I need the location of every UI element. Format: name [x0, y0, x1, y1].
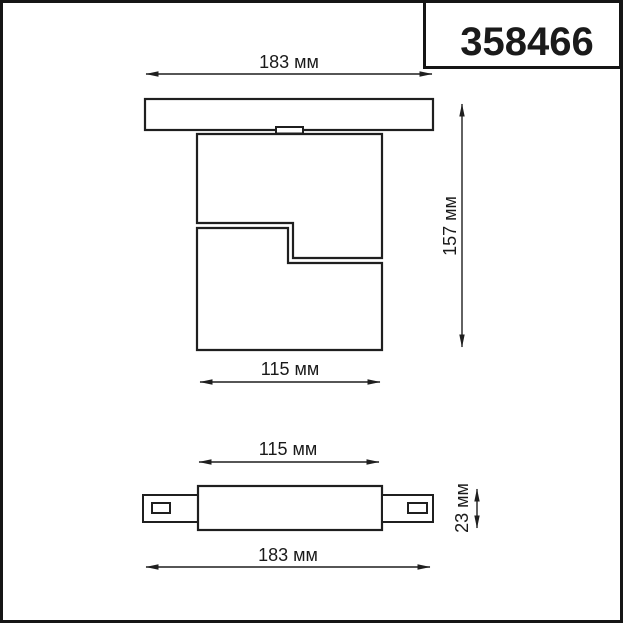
track-bar	[145, 99, 433, 130]
side-view-dim-height: 157 мм	[440, 104, 462, 347]
drawing-svg: 358466 183 мм 157 мм 11	[0, 0, 623, 623]
right-tab-slot	[408, 503, 427, 513]
technical-drawing-canvas: 358466 183 мм 157 мм 11	[0, 0, 623, 623]
top-view: 115 мм 23 мм 183 мм	[143, 439, 477, 567]
connector-tab	[276, 127, 303, 134]
side-view-dim-width-top-label: 183 мм	[259, 52, 319, 72]
side-view: 183 мм 157 мм 115 мм	[145, 52, 462, 382]
top-view-dim-width-bottom: 183 мм	[146, 545, 430, 567]
top-view-dim-width-top-label: 115 мм	[259, 439, 317, 459]
top-view-dim-width-top: 115 мм	[199, 439, 379, 462]
top-view-dim-width-bottom-label: 183 мм	[258, 545, 318, 565]
part-number-box: 358466	[425, 2, 621, 68]
left-tab-slot	[152, 503, 170, 513]
top-view-dim-height: 23 мм	[452, 483, 477, 533]
side-view-dim-width-top: 183 мм	[146, 52, 432, 74]
side-view-dim-width-bottom: 115 мм	[200, 359, 380, 382]
adapter-body	[198, 486, 382, 530]
part-number: 358466	[460, 20, 593, 64]
top-view-dim-height-label: 23 мм	[452, 483, 472, 533]
side-view-dim-width-bottom-label: 115 мм	[261, 359, 319, 379]
side-view-dim-height-label: 157 мм	[440, 196, 460, 256]
